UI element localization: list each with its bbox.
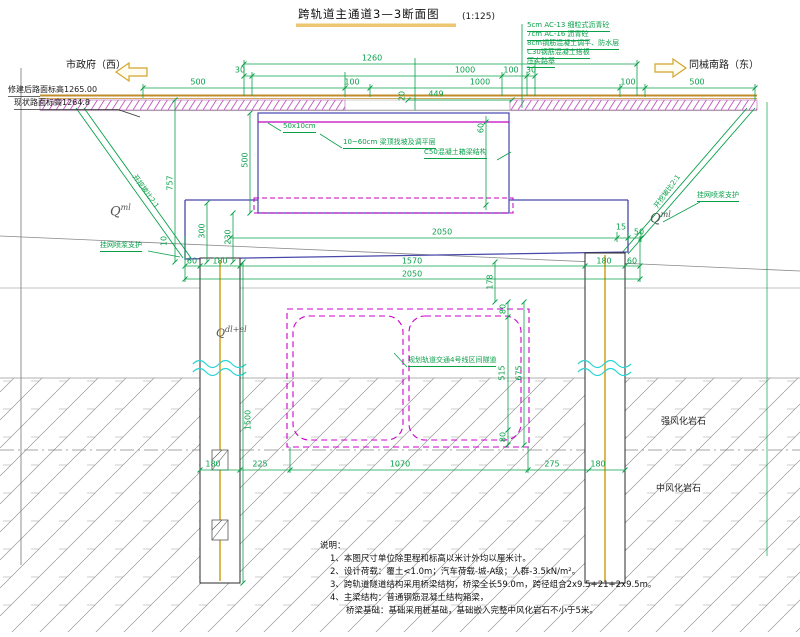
geology-qml-right: Qml [650,211,671,227]
dim-1570: 1570 [402,258,422,267]
dim-50: 50 [634,229,644,238]
bridge-structure [185,113,628,259]
geology-qdl: Qdl+el [216,326,247,340]
note-item-3: 3、跨轨道隧道结构采用桥梁结构，桥梁全长59.0m，跨径组合2x9.5+21+2… [330,581,656,590]
dim-757: 757 [167,175,176,190]
geology-hatch [0,68,800,632]
note-item-5: 桥梁基础：基础采用桩基础，基础嵌入完整中风化岩石不小于5米。 [346,607,598,616]
dim-30b: 30 [526,67,536,76]
direction-east-label: 同械南路（东） [689,60,759,71]
note-item-4: 4、主梁结构：普通钢筋混凝土结构箱梁， [330,594,488,603]
dim-1000a: 1000 [455,67,475,76]
dim-2050b: 2050 [402,271,422,280]
east-arrow-icon [655,59,686,77]
shotcrete-left-label: 挂网喷浆支护 [100,242,142,252]
note-item-2: 2、设计荷载：覆土<1.0m；汽车荷载-城-A级；人群-3.5kN/m²。 [330,568,580,577]
dim-515: 515 [499,365,508,380]
dim-100-right: 100 [620,79,635,88]
dim-60-left: 60 [187,258,197,267]
dim-b225: 225 [252,461,267,470]
dim-b1070: 1070 [390,461,410,470]
dim-180-left: 180 [212,258,227,267]
dim-100-left: 100 [344,79,359,88]
geology-qml-left: Qml [110,204,131,220]
dim-80-top: 80 [500,304,509,314]
dim-230: 230 [225,229,234,244]
dim-178: 178 [487,274,496,289]
dim-449: 449 [428,91,443,100]
dim-80-bottom: 80 [500,432,509,442]
dim-30a: 30 [235,67,245,76]
existing-road-elevation: 现状路面标高1264.8 [14,99,90,108]
rock-medium-label: 中风化岩石 [656,485,701,495]
box-girder-label: C50混凝土箱梁结构 [424,149,487,159]
dim-1260: 1260 [362,55,382,64]
metro-tunnel-label: 规划轨道交通4号线区间隧道 [408,357,496,367]
dim-500-left: 500 [190,79,205,88]
new-road-elevation: 修建后路面标高1265.00 [8,86,97,95]
dim-b275: 275 [544,461,559,470]
dim-675: 675 [516,365,525,380]
page-title: 跨轨道主通道3—3断面图 [298,8,440,21]
dim-10: 10 [161,236,170,246]
dim-300: 300 [199,223,208,238]
dim-b180-left: 180 [205,461,220,470]
note-item-1: 1、本图尺寸单位除里程和标高以米计外均以厘米计。 [330,555,531,564]
notes-heading: 说明： [320,542,346,551]
dim-500-right: 500 [689,79,704,88]
drawing-sheet: 跨轨道主通道3—3断面图 (1:125) 市政府（西） 同械南路（东） 修建后路… [0,0,800,637]
dim-60-right: 60 [627,258,637,267]
dim-1500: 1500 [245,410,254,430]
excavation-slopes [76,108,755,258]
dim-b180-right: 180 [590,461,605,470]
dim-180-right: 180 [596,258,611,267]
title-underline [296,24,456,28]
dim-1000b: 1000 [470,79,490,88]
dim-15: 15 [616,224,626,233]
dim-100a: 100 [503,67,518,76]
leveling-layer-label: 10~60cm 梁顶找坡及调平层 [343,139,436,149]
rock-strong-label: 强风化岩石 [661,418,706,428]
dim-500-box: 500 [242,152,251,167]
drawing-scale: (1:125) [462,13,495,23]
dim-60-box: 60 [478,123,487,133]
dim-20: 20 [399,91,408,101]
direction-west-label: 市政府（西） [66,60,126,71]
dim-2050a: 2050 [432,229,452,238]
curb-label: 50x10cm [283,123,316,133]
shotcrete-right-label: 挂网喷浆支护 [697,192,739,202]
